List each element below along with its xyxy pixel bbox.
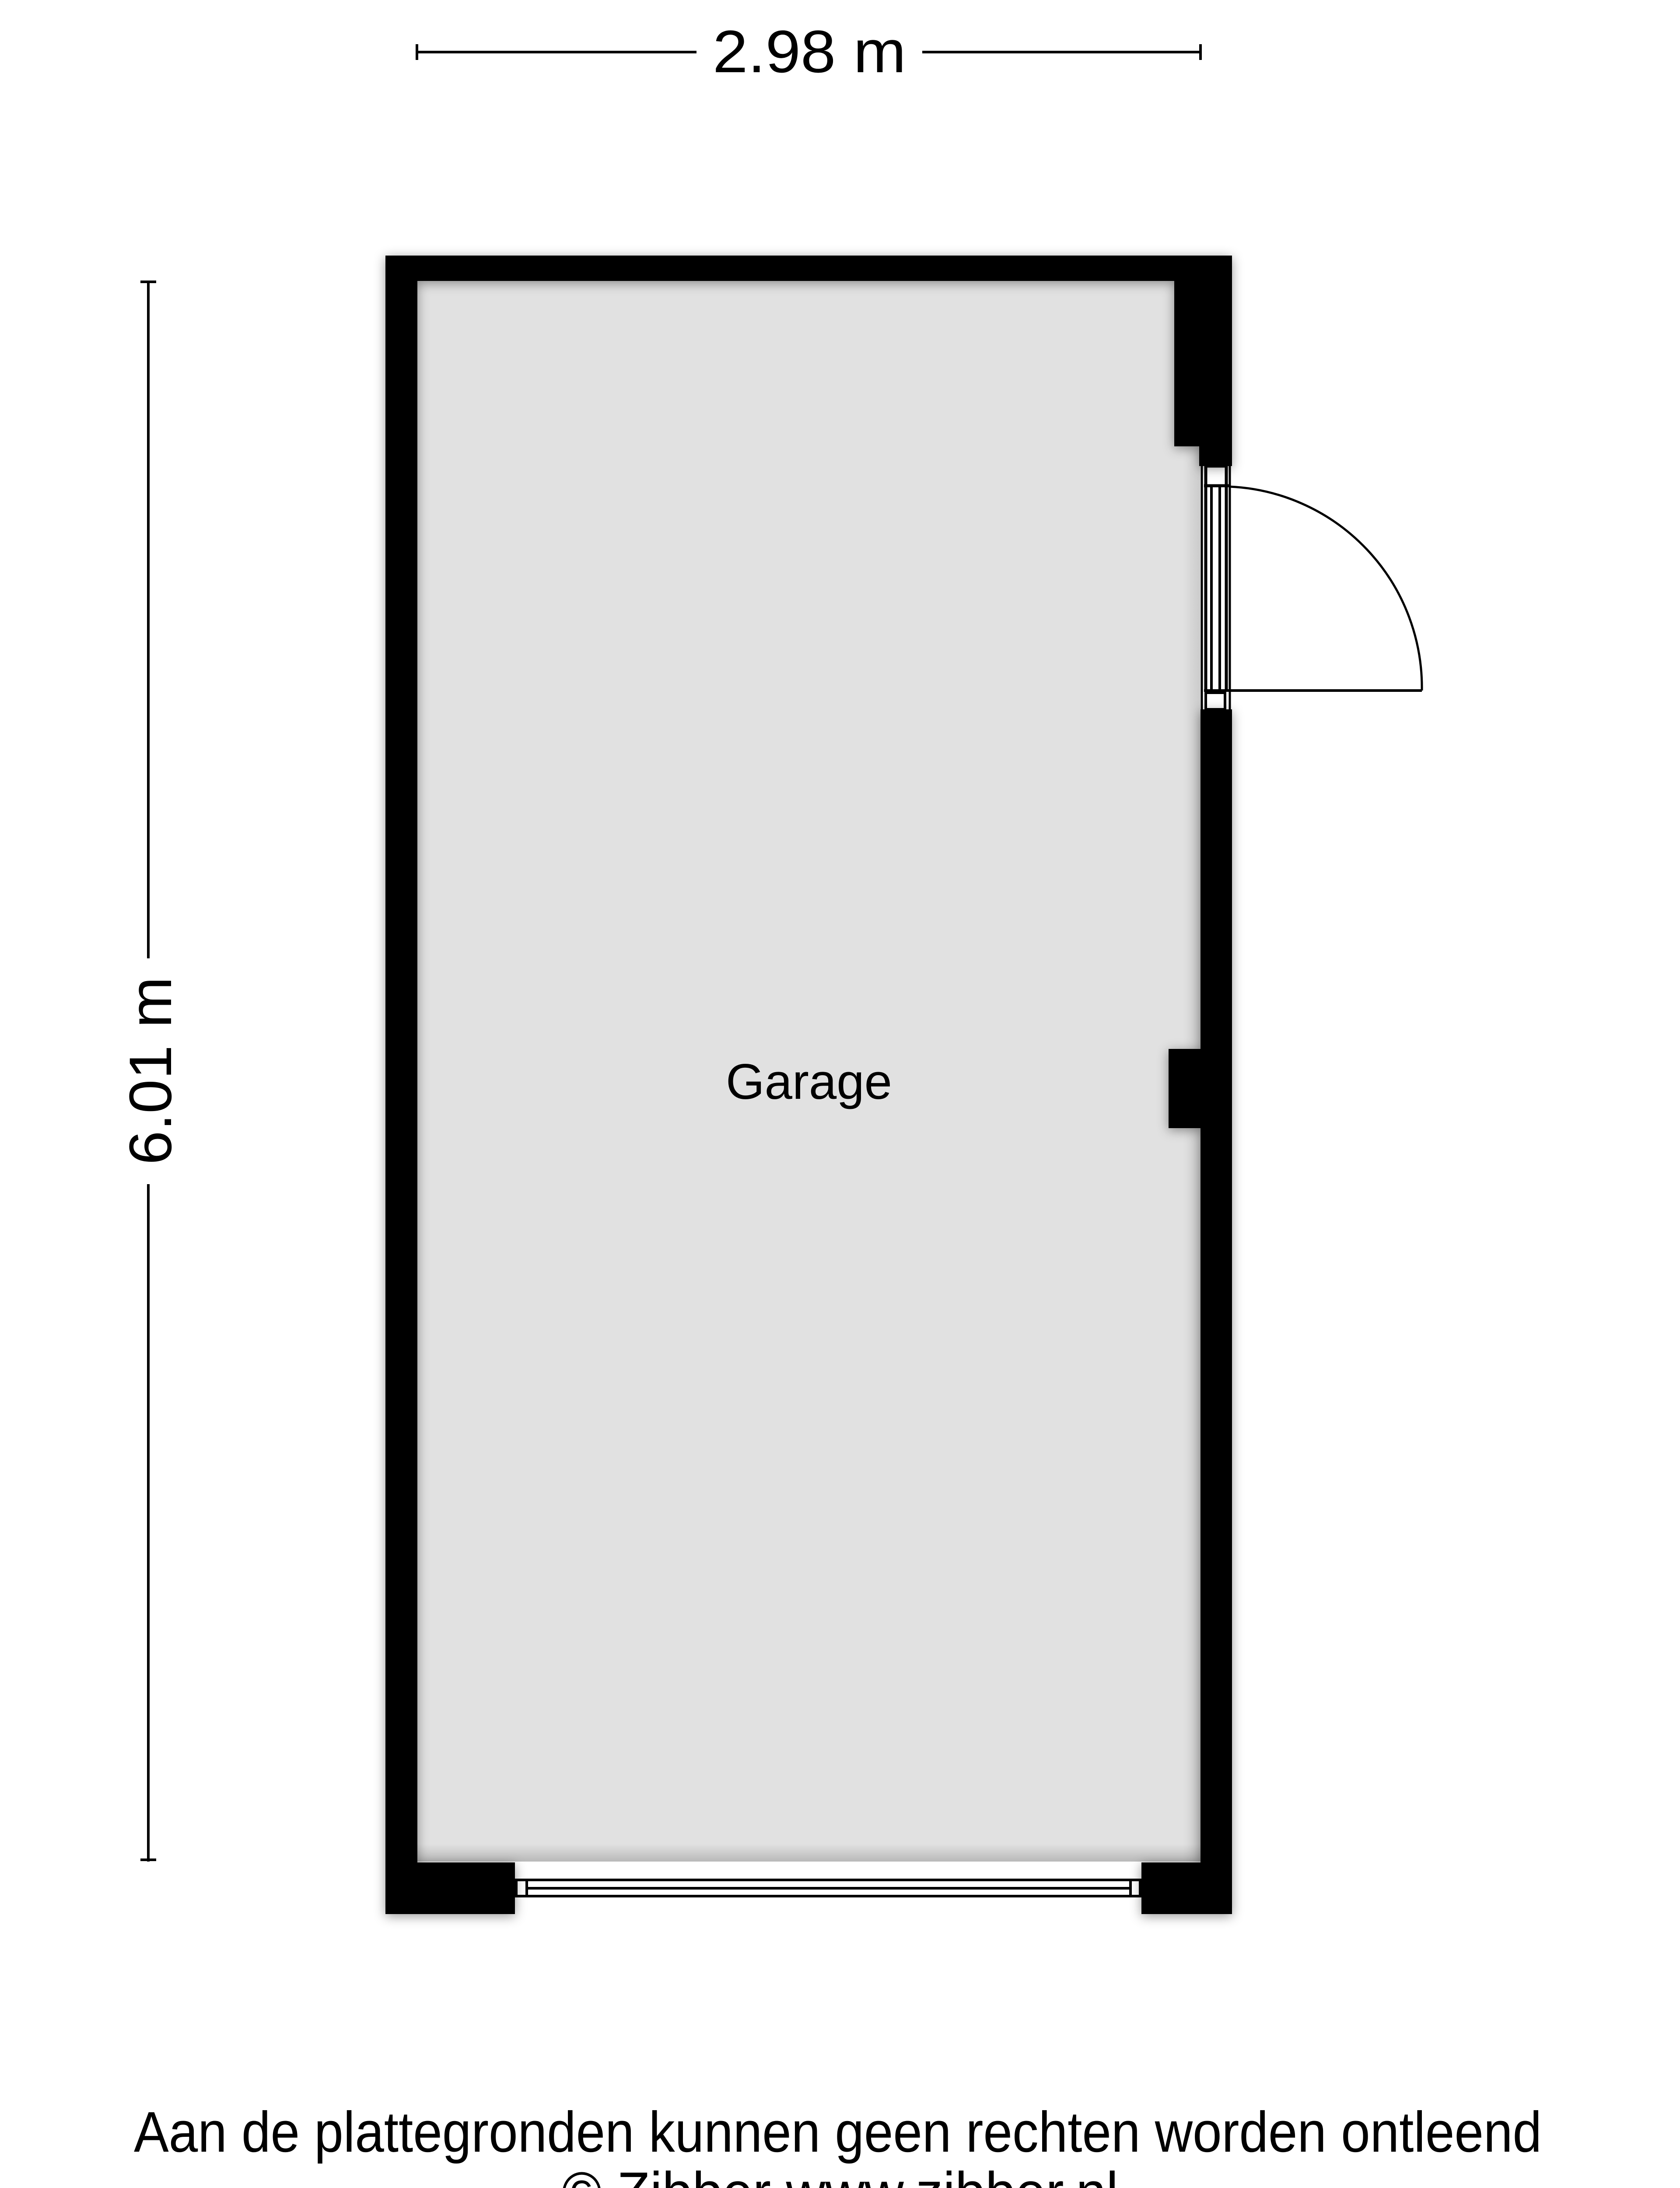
svg-text:2.98 m: 2.98 m bbox=[713, 18, 906, 85]
svg-text:6.01 m: 6.01 m bbox=[117, 977, 184, 1165]
svg-text:© Zibber www.zibber.nl: © Zibber www.zibber.nl bbox=[562, 2160, 1118, 2188]
svg-text:Garage: Garage bbox=[726, 1054, 892, 1110]
svg-text:Aan de plattegronden kunnen ge: Aan de plattegronden kunnen geen rechten… bbox=[134, 2100, 1542, 2164]
